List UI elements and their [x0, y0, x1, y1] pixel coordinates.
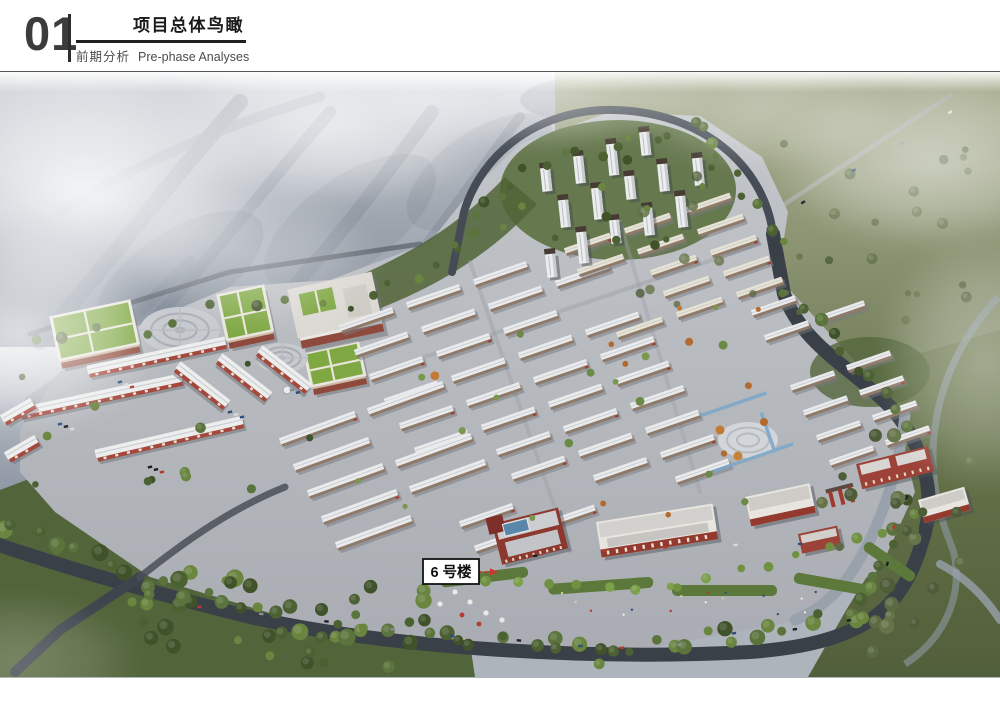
subtitle-en: Pre-phase Analyses: [138, 50, 249, 64]
subtitle-cn: 前期分析: [76, 50, 130, 64]
aerial-render-canvas: 6 号楼: [0, 72, 1000, 677]
aerial-render: 6 号楼: [0, 71, 1000, 678]
page-subtitle: 前期分析Pre-phase Analyses: [76, 46, 246, 65]
header-divider: [68, 14, 71, 62]
header-title-block: 项目总体鸟瞰 前期分析Pre-phase Analyses: [76, 11, 246, 65]
callout-label: 6 号楼: [430, 563, 472, 581]
title-underline: [76, 40, 246, 43]
slide-page: 01 项目总体鸟瞰 前期分析Pre-phase Analyses: [0, 0, 1000, 707]
page-title: 项目总体鸟瞰: [76, 11, 246, 36]
slide-header: 01 项目总体鸟瞰 前期分析Pre-phase Analyses: [0, 0, 1000, 71]
